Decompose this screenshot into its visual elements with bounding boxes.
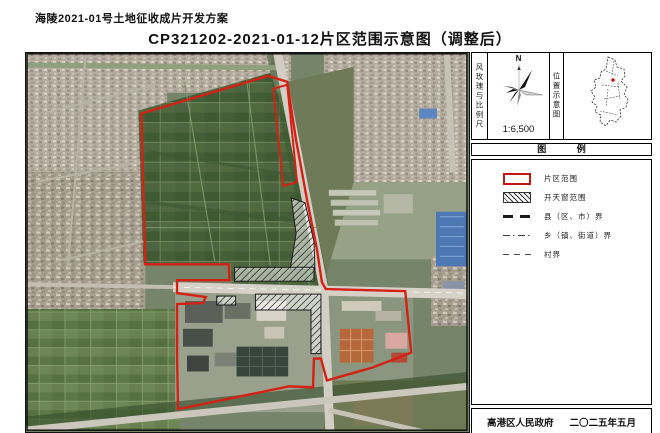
satellite-map-canvas (26, 53, 468, 431)
location-strip-label: 位置示意图 (550, 53, 564, 139)
issue-date: 二〇二五年五月 (570, 415, 637, 429)
hatch-rect-icon (502, 192, 532, 203)
legend-item-excluded-scope: 开天窗范围 (472, 188, 651, 207)
location-map-outline (566, 53, 654, 139)
legend-title: 图 例 (471, 143, 652, 156)
windrose-box: N 1:6,500 (488, 53, 550, 139)
plan-label: 海陵2021-01号土地征收成片开发方案 (35, 10, 228, 26)
dash-dot-line-icon (502, 235, 532, 237)
bold-dash-line-icon (502, 215, 532, 218)
red-rect-outline-icon (502, 173, 532, 185)
map-scale: 1:6,500 (488, 124, 549, 135)
page-title: CP321202-2021-01-12片区范围示意图（调整后） (0, 28, 660, 49)
satellite-map (25, 52, 470, 433)
info-panel: 风玫瑰与比例尺 N (471, 52, 654, 433)
location-marker-dot (611, 78, 615, 82)
map-footer: 高港区人民政府 二〇二五年五月 泰州市自然资源和规划局医药高新区（高港区）分局 (471, 408, 652, 433)
thin-dash-line-icon (502, 254, 532, 255)
page: 海陵2021-01号土地征收成片开发方案 CP321202-2021-01-12… (0, 0, 660, 433)
legend-item-township-boundary: 乡（镇、街道）界 (472, 226, 651, 245)
panel-top-row: 风玫瑰与比例尺 N (471, 52, 652, 140)
issuing-authority: 高港区人民政府 (487, 415, 554, 429)
location-inset-map (564, 53, 651, 139)
legend-item-village-boundary: 村界 (472, 245, 651, 264)
legend-box: 片区范围 开天窗范围 县（区、市）界 乡（镇、街道）界 村界 (471, 159, 652, 405)
legend-item-district-scope: 片区范围 (472, 169, 651, 188)
legend-item-county-boundary: 县（区、市）界 (472, 207, 651, 226)
windrose-scale-strip-label: 风玫瑰与比例尺 (472, 53, 488, 139)
windrose-icon (494, 62, 544, 116)
